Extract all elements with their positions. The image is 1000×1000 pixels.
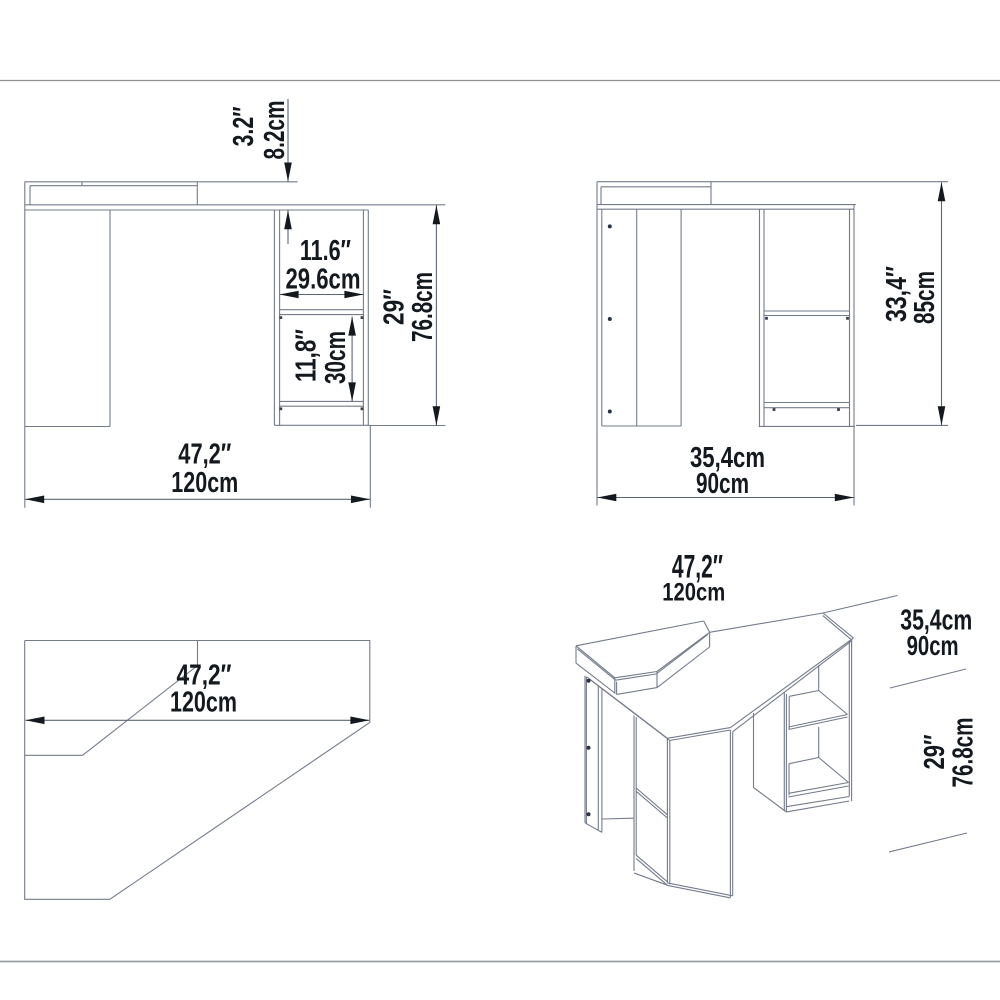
svg-text:30cm: 30cm: [320, 331, 352, 384]
svg-text:3.2″: 3.2″: [228, 106, 260, 146]
svg-text:90cm: 90cm: [696, 468, 749, 500]
svg-text:29″: 29″: [378, 289, 410, 325]
svg-text:90cm: 90cm: [907, 630, 959, 661]
svg-text:8.2cm: 8.2cm: [259, 101, 291, 160]
svg-text:11,8″: 11,8″: [291, 329, 323, 382]
svg-text:120cm: 120cm: [662, 579, 725, 607]
svg-text:29″: 29″: [919, 734, 951, 769]
svg-text:11.6″: 11.6″: [300, 235, 351, 267]
svg-text:120cm: 120cm: [171, 467, 238, 499]
svg-text:29.6cm: 29.6cm: [286, 264, 361, 296]
svg-text:120cm: 120cm: [170, 687, 237, 719]
svg-text:85cm: 85cm: [909, 271, 941, 324]
svg-text:76.8cm: 76.8cm: [407, 272, 439, 342]
svg-text:47,2″: 47,2″: [178, 439, 231, 471]
svg-text:76.8cm: 76.8cm: [948, 718, 980, 788]
